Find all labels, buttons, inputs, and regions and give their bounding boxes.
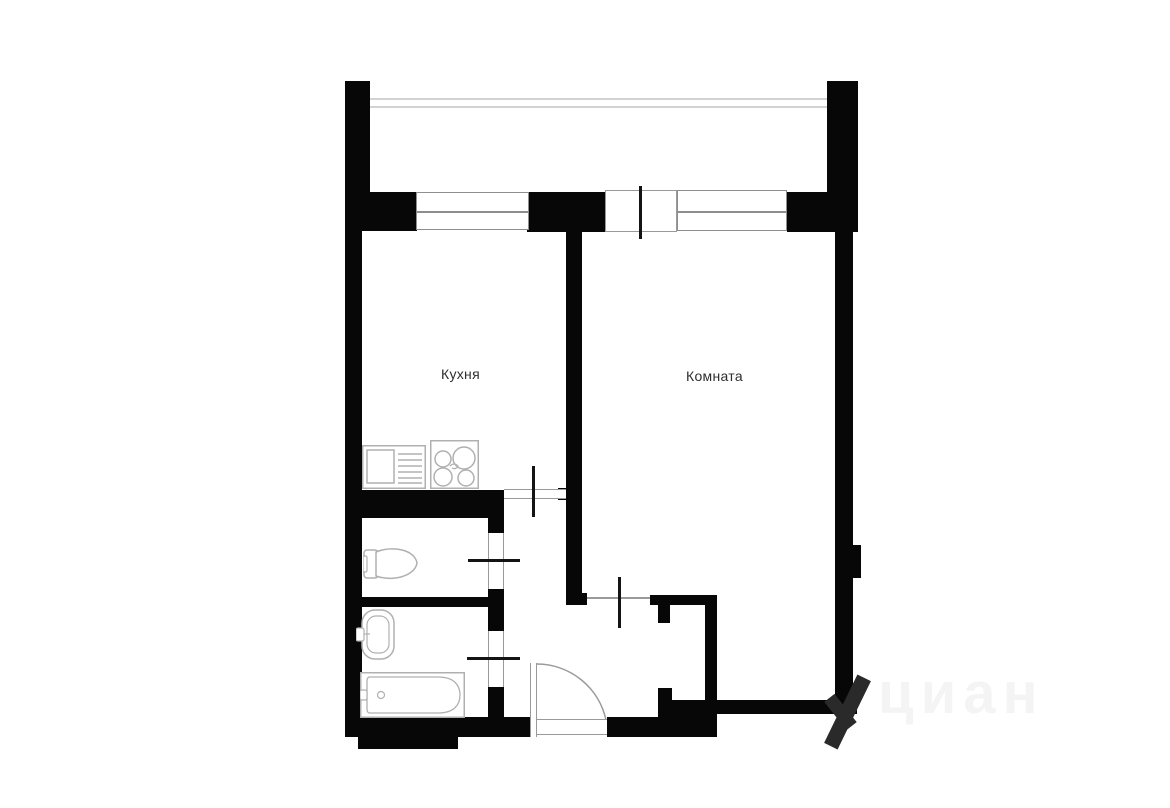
bottom-wall-left [345,717,530,737]
balcony-railing-line [370,98,827,100]
wc-wall-upper [488,490,504,533]
wc-wall-lower [488,687,504,720]
toilet-icon [363,544,419,584]
stove-icon [430,440,479,489]
floor-plan: Кухня Комната циан [0,0,1170,808]
watermark-text: циан [878,660,1045,727]
balcony-door-tick [639,186,642,239]
window-row-center-block [527,192,605,232]
kitchen-label: Кухня [441,366,480,382]
bottom-wall-left-step [358,737,458,749]
window-frame-line [417,211,528,213]
entry-door-leaf [530,663,537,737]
window-frame-line [678,211,786,213]
kitchen-sink-icon [362,445,426,489]
kitchen-door-opening [504,489,566,499]
right-wall-pillar [853,545,861,578]
kitchen-window [416,192,529,230]
kitchen-door-tick [532,466,535,517]
kitchen-room-wall [566,231,582,593]
wc-door-tick [468,559,520,562]
bathroom-door-tick [467,657,520,660]
kitchen-bottom-wall [345,490,490,518]
kitchen-room-wall-foot [566,593,587,605]
closet-stub-top [658,605,670,623]
balcony-railing-line [370,106,827,108]
room-door-tick [618,577,621,628]
balcony-left-wall [345,81,370,193]
wash-basin-icon [356,609,396,661]
window-row-right-block [787,192,858,232]
window-row-left-block [345,192,417,231]
room-label: Комната [686,368,743,384]
room-bottom-wall [650,595,717,605]
entry-door-arc [537,663,609,723]
closet-right-wall [705,605,717,702]
wc-bath-divider-wall [358,597,488,607]
balcony-right-wall [827,81,858,193]
room-window [677,190,787,231]
right-outer-wall [835,231,853,714]
bathtub-icon [360,672,465,718]
wc-wall-middle [488,589,504,631]
bottom-wall-corner-fill [658,700,717,737]
